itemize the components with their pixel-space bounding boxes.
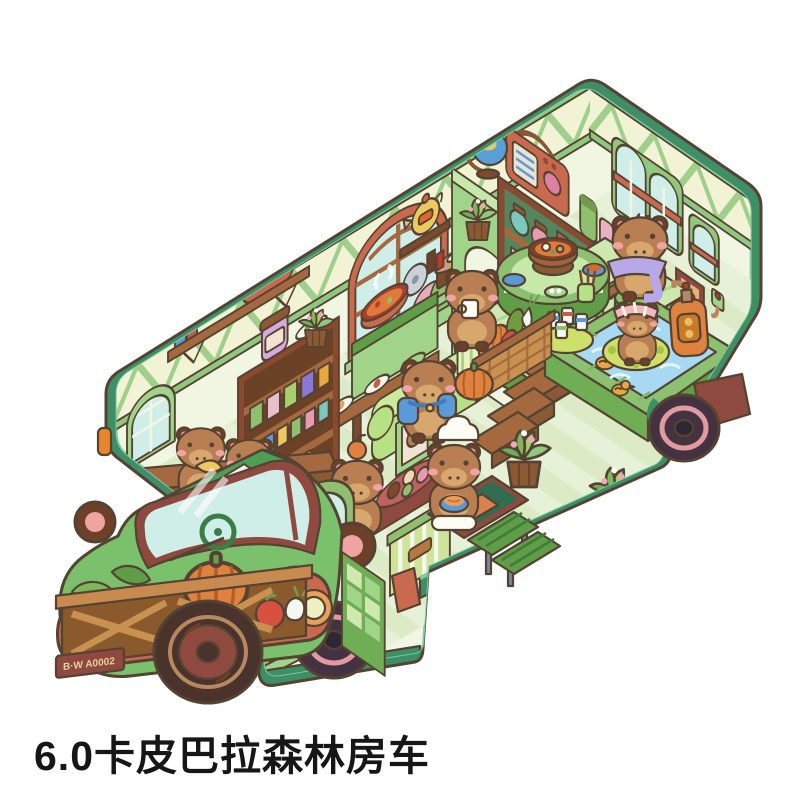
tail-lamp (98, 428, 111, 455)
capybara-towel (608, 216, 667, 301)
illustration-caption: 6.0卡皮巴拉森林房车 (34, 722, 430, 782)
capybara-camper-illustration: B·W A0002 (0, 0, 800, 800)
front-wheel (154, 601, 262, 703)
side-flap (392, 568, 420, 612)
illustration-stage: B·W A0002 6.0卡皮巴拉森林房车 (0, 0, 800, 800)
